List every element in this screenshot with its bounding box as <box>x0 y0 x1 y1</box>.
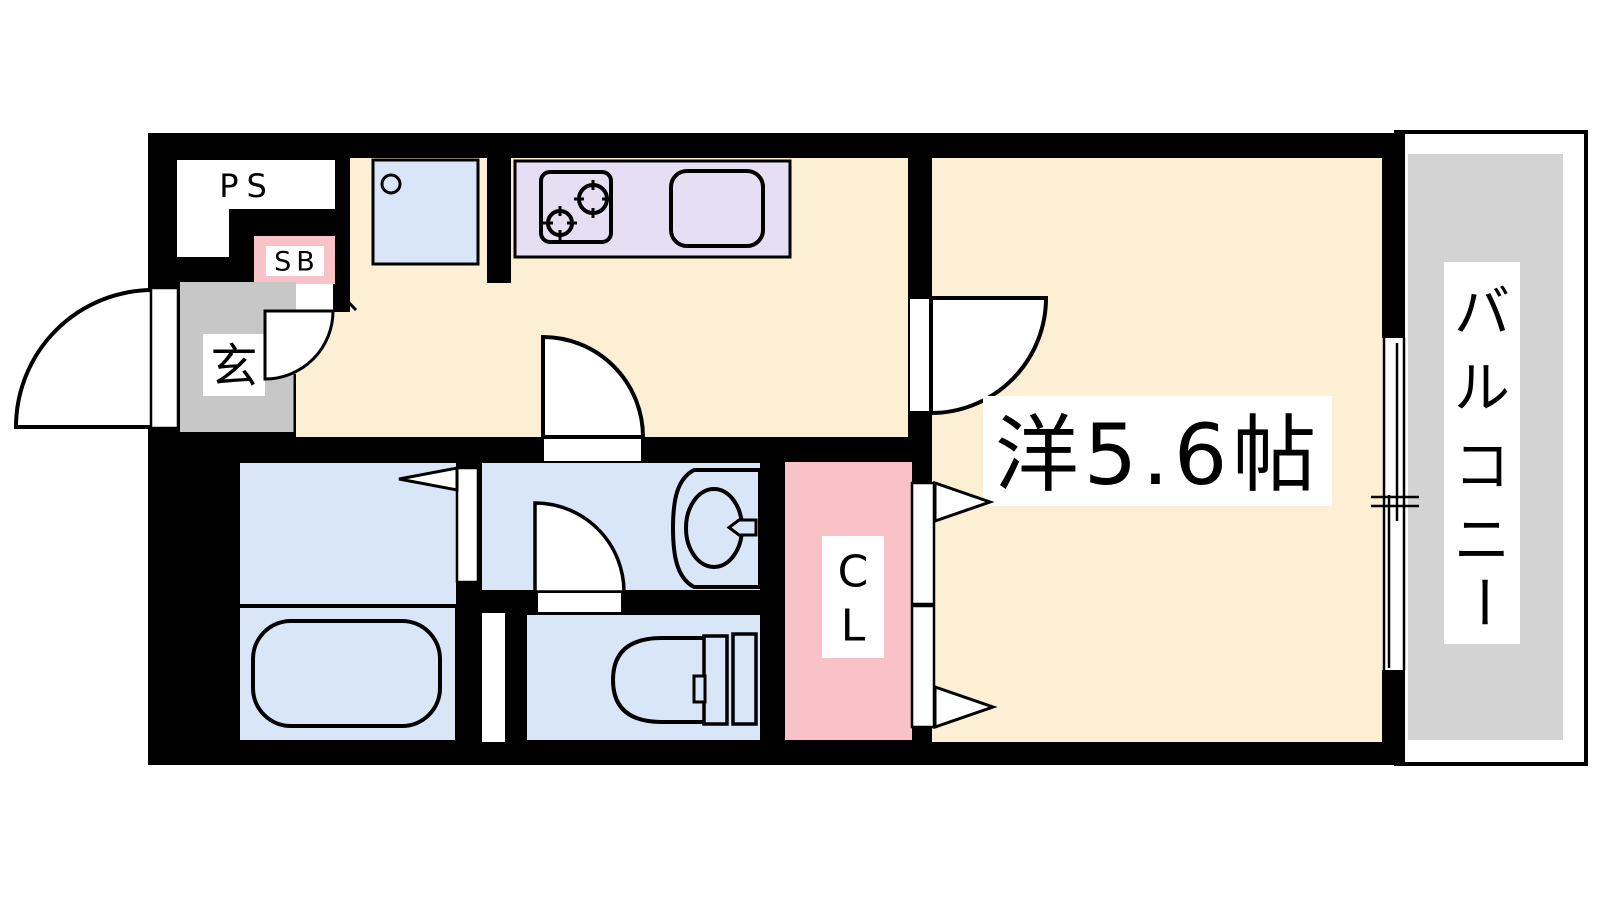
shaft-strip <box>482 613 505 742</box>
room-changing <box>240 463 478 604</box>
floor-plan: バ ル コ ニ ー PS SB 玄 <box>0 0 1600 900</box>
closet-door-panel-1 <box>912 483 934 604</box>
wall-stub <box>487 158 511 283</box>
closet-label-c: C <box>838 547 869 598</box>
toilet-seat <box>704 636 727 724</box>
main-room-label: 洋5.6帖 <box>995 406 1322 504</box>
room-bath <box>240 608 455 740</box>
ps-label: PS <box>219 167 275 205</box>
shoe-box: SB <box>254 236 335 284</box>
washroom-door-opening <box>537 592 622 613</box>
washing-machine-pan-icon <box>373 160 478 264</box>
room-main: 洋5.6帖 <box>909 158 1382 742</box>
sb-label: SB <box>274 247 320 278</box>
entrance-door-opening <box>151 288 178 428</box>
floor-plan-page: バ ル コ ニ ー PS SB 玄 <box>0 0 1600 900</box>
hall-door-opening <box>543 438 642 462</box>
changing-folding-door <box>457 468 478 582</box>
balcony-label-char3: コ <box>1454 435 1510 500</box>
toilet-tank <box>733 634 756 724</box>
balcony-label-char5: ー <box>1450 574 1515 630</box>
room-toilet <box>527 615 760 740</box>
window-opening <box>1382 338 1406 670</box>
balcony-label-char4: ニ <box>1454 509 1510 574</box>
entrance-door-swing <box>16 290 153 427</box>
toilet-button <box>694 676 705 702</box>
balcony-label-char1: バ <box>1454 281 1510 346</box>
closet-label-l: L <box>841 601 866 652</box>
kitchen-counter <box>515 161 790 257</box>
entrance-door <box>16 288 178 428</box>
balcony: バ ル コ ニ ー <box>1396 132 1586 764</box>
main-door-opening <box>909 298 931 412</box>
balcony-label-char2: ル <box>1454 357 1510 422</box>
closet-door-panel-2 <box>912 606 934 727</box>
genkan-label: 玄 <box>211 340 258 395</box>
